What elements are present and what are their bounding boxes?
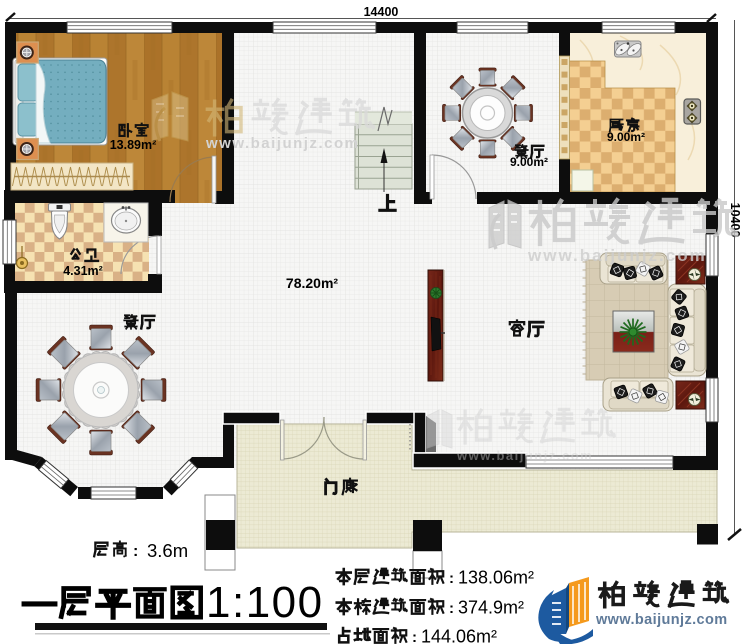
svg-text:78.20m²: 78.20m² [286,275,338,291]
svg-text:www.baijunjz.com: www.baijunjz.com [205,135,359,152]
svg-text::: : [449,570,454,587]
svg-text:www.baijunjz.com: www.baijunjz.com [595,612,728,628]
svg-text:1:100: 1:100 [206,578,324,627]
svg-text:14400: 14400 [364,5,399,19]
svg-text:138.06m²: 138.06m² [458,568,534,588]
svg-text:www.baijunjz.com: www.baijunjz.com [527,246,707,265]
svg-text::: : [449,600,454,617]
svg-text:4.31m²: 4.31m² [63,264,103,278]
svg-text::: : [133,543,138,560]
svg-text:9.00m²: 9.00m² [510,155,548,169]
svg-text:9.00m²: 9.00m² [607,130,645,144]
svg-text:3.6m: 3.6m [147,540,188,561]
svg-text:www.baijunjz.com: www.baijunjz.com [456,448,593,463]
svg-text:13.89m²: 13.89m² [110,138,157,152]
svg-text:374.9m²: 374.9m² [458,598,524,618]
svg-text:144.06m²: 144.06m² [421,627,497,644]
svg-text::: : [412,629,417,644]
